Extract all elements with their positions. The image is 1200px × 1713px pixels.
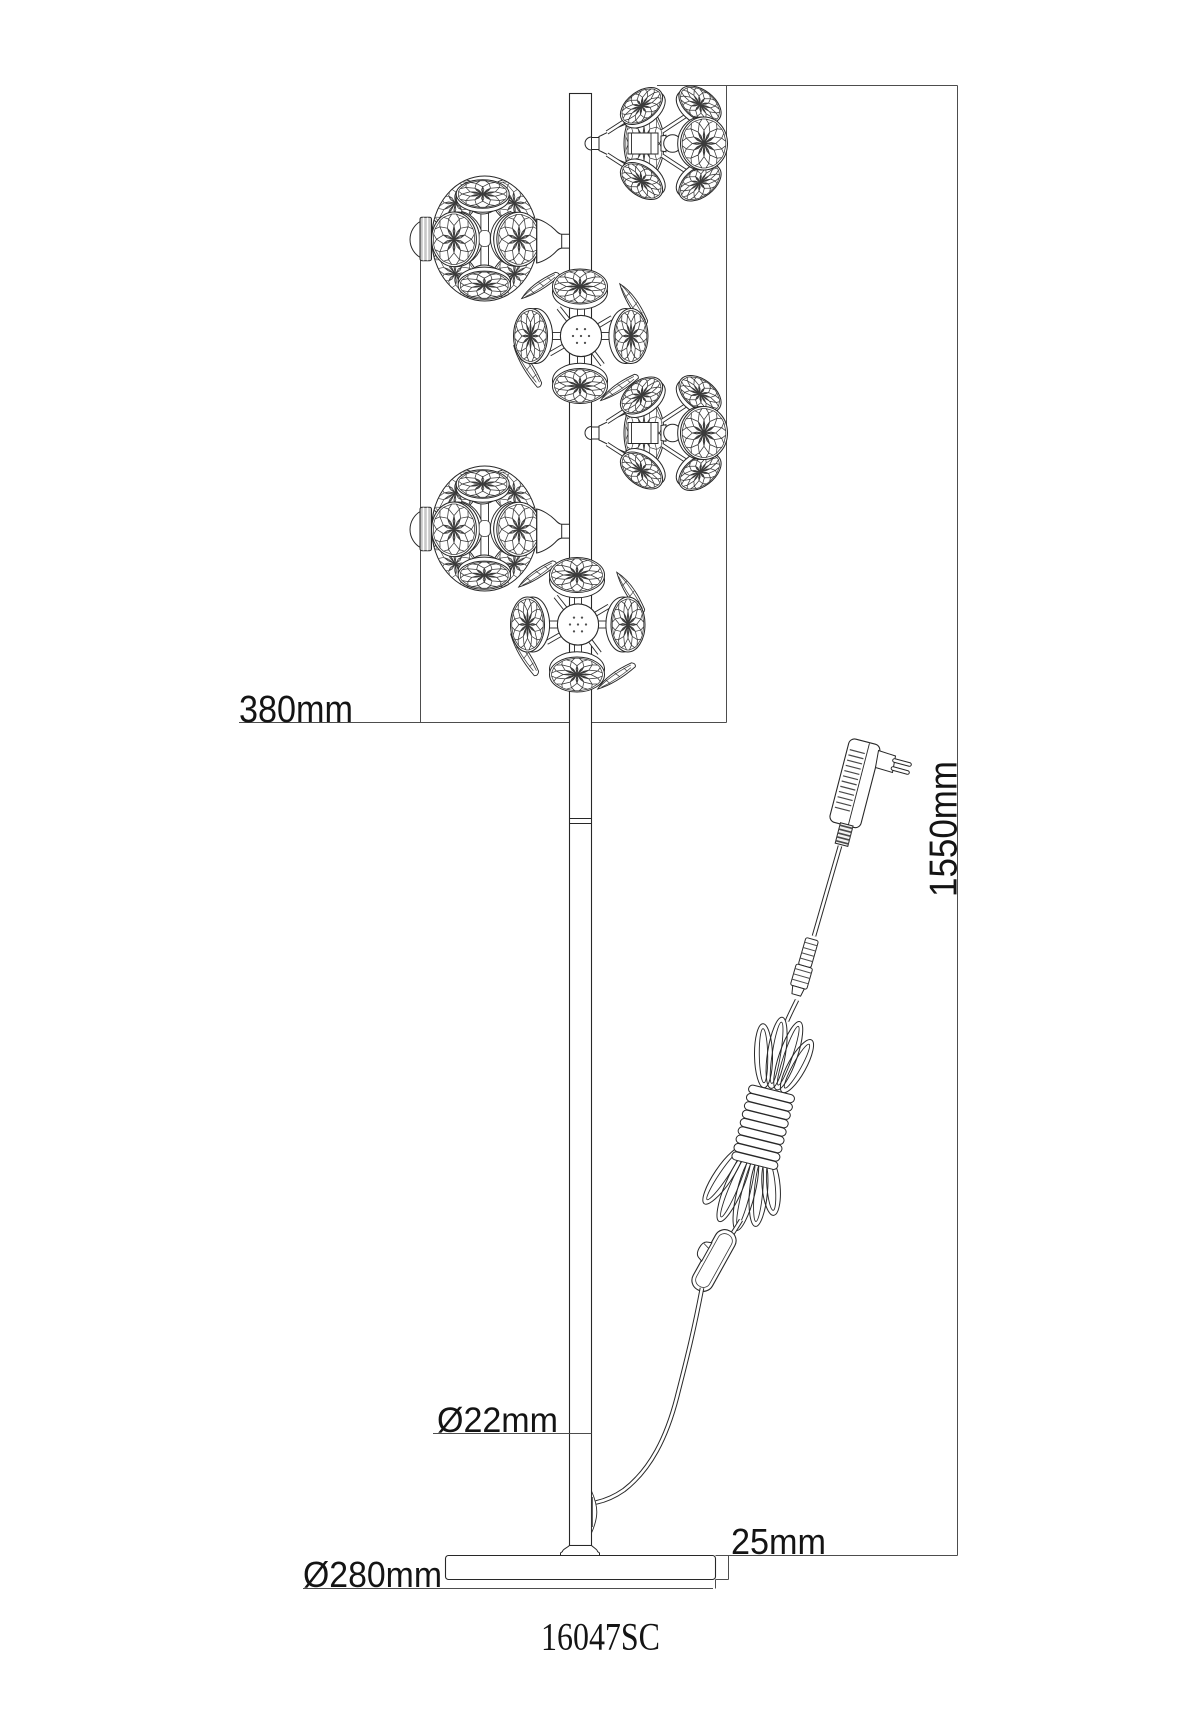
svg-text:Ø280mm: Ø280mm (303, 1554, 442, 1595)
svg-text:16047SC: 16047SC (541, 1616, 660, 1659)
svg-text:380mm: 380mm (239, 689, 353, 731)
svg-text:Ø22mm: Ø22mm (437, 1400, 558, 1440)
svg-text:25mm: 25mm (731, 1521, 826, 1562)
svg-text:1550mm: 1550mm (923, 761, 966, 897)
